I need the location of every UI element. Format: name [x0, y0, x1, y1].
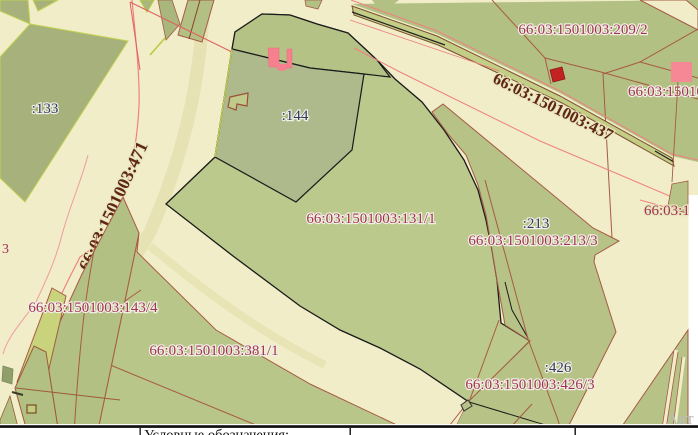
- svg-text::213: :213: [523, 216, 550, 232]
- svg-text::133: :133: [32, 101, 59, 117]
- svg-text:Условные обозначения:: Условные обозначения:: [144, 428, 289, 435]
- svg-text:66:03:1501003:143/4: 66:03:1501003:143/4: [28, 300, 158, 316]
- svg-text::426: :426: [545, 360, 572, 376]
- svg-text:66:03:1501003:213/3: 66:03:1501003:213/3: [468, 233, 597, 249]
- svg-text:66:03:1501003:131/1: 66:03:1501003:131/1: [306, 211, 435, 227]
- svg-text::144: :144: [282, 108, 309, 124]
- svg-text:Акт: Акт: [666, 409, 694, 428]
- svg-text:66:03:1501003:150: 66:03:1501003:150: [628, 84, 698, 100]
- svg-text:66:03:1501003:209/2: 66:03:1501003:209/2: [518, 22, 647, 38]
- svg-text:3: 3: [2, 242, 9, 257]
- svg-text:66:03:1501003:426/3: 66:03:1501003:426/3: [465, 377, 594, 393]
- svg-text:66:03:1501003:381/1: 66:03:1501003:381/1: [149, 343, 278, 359]
